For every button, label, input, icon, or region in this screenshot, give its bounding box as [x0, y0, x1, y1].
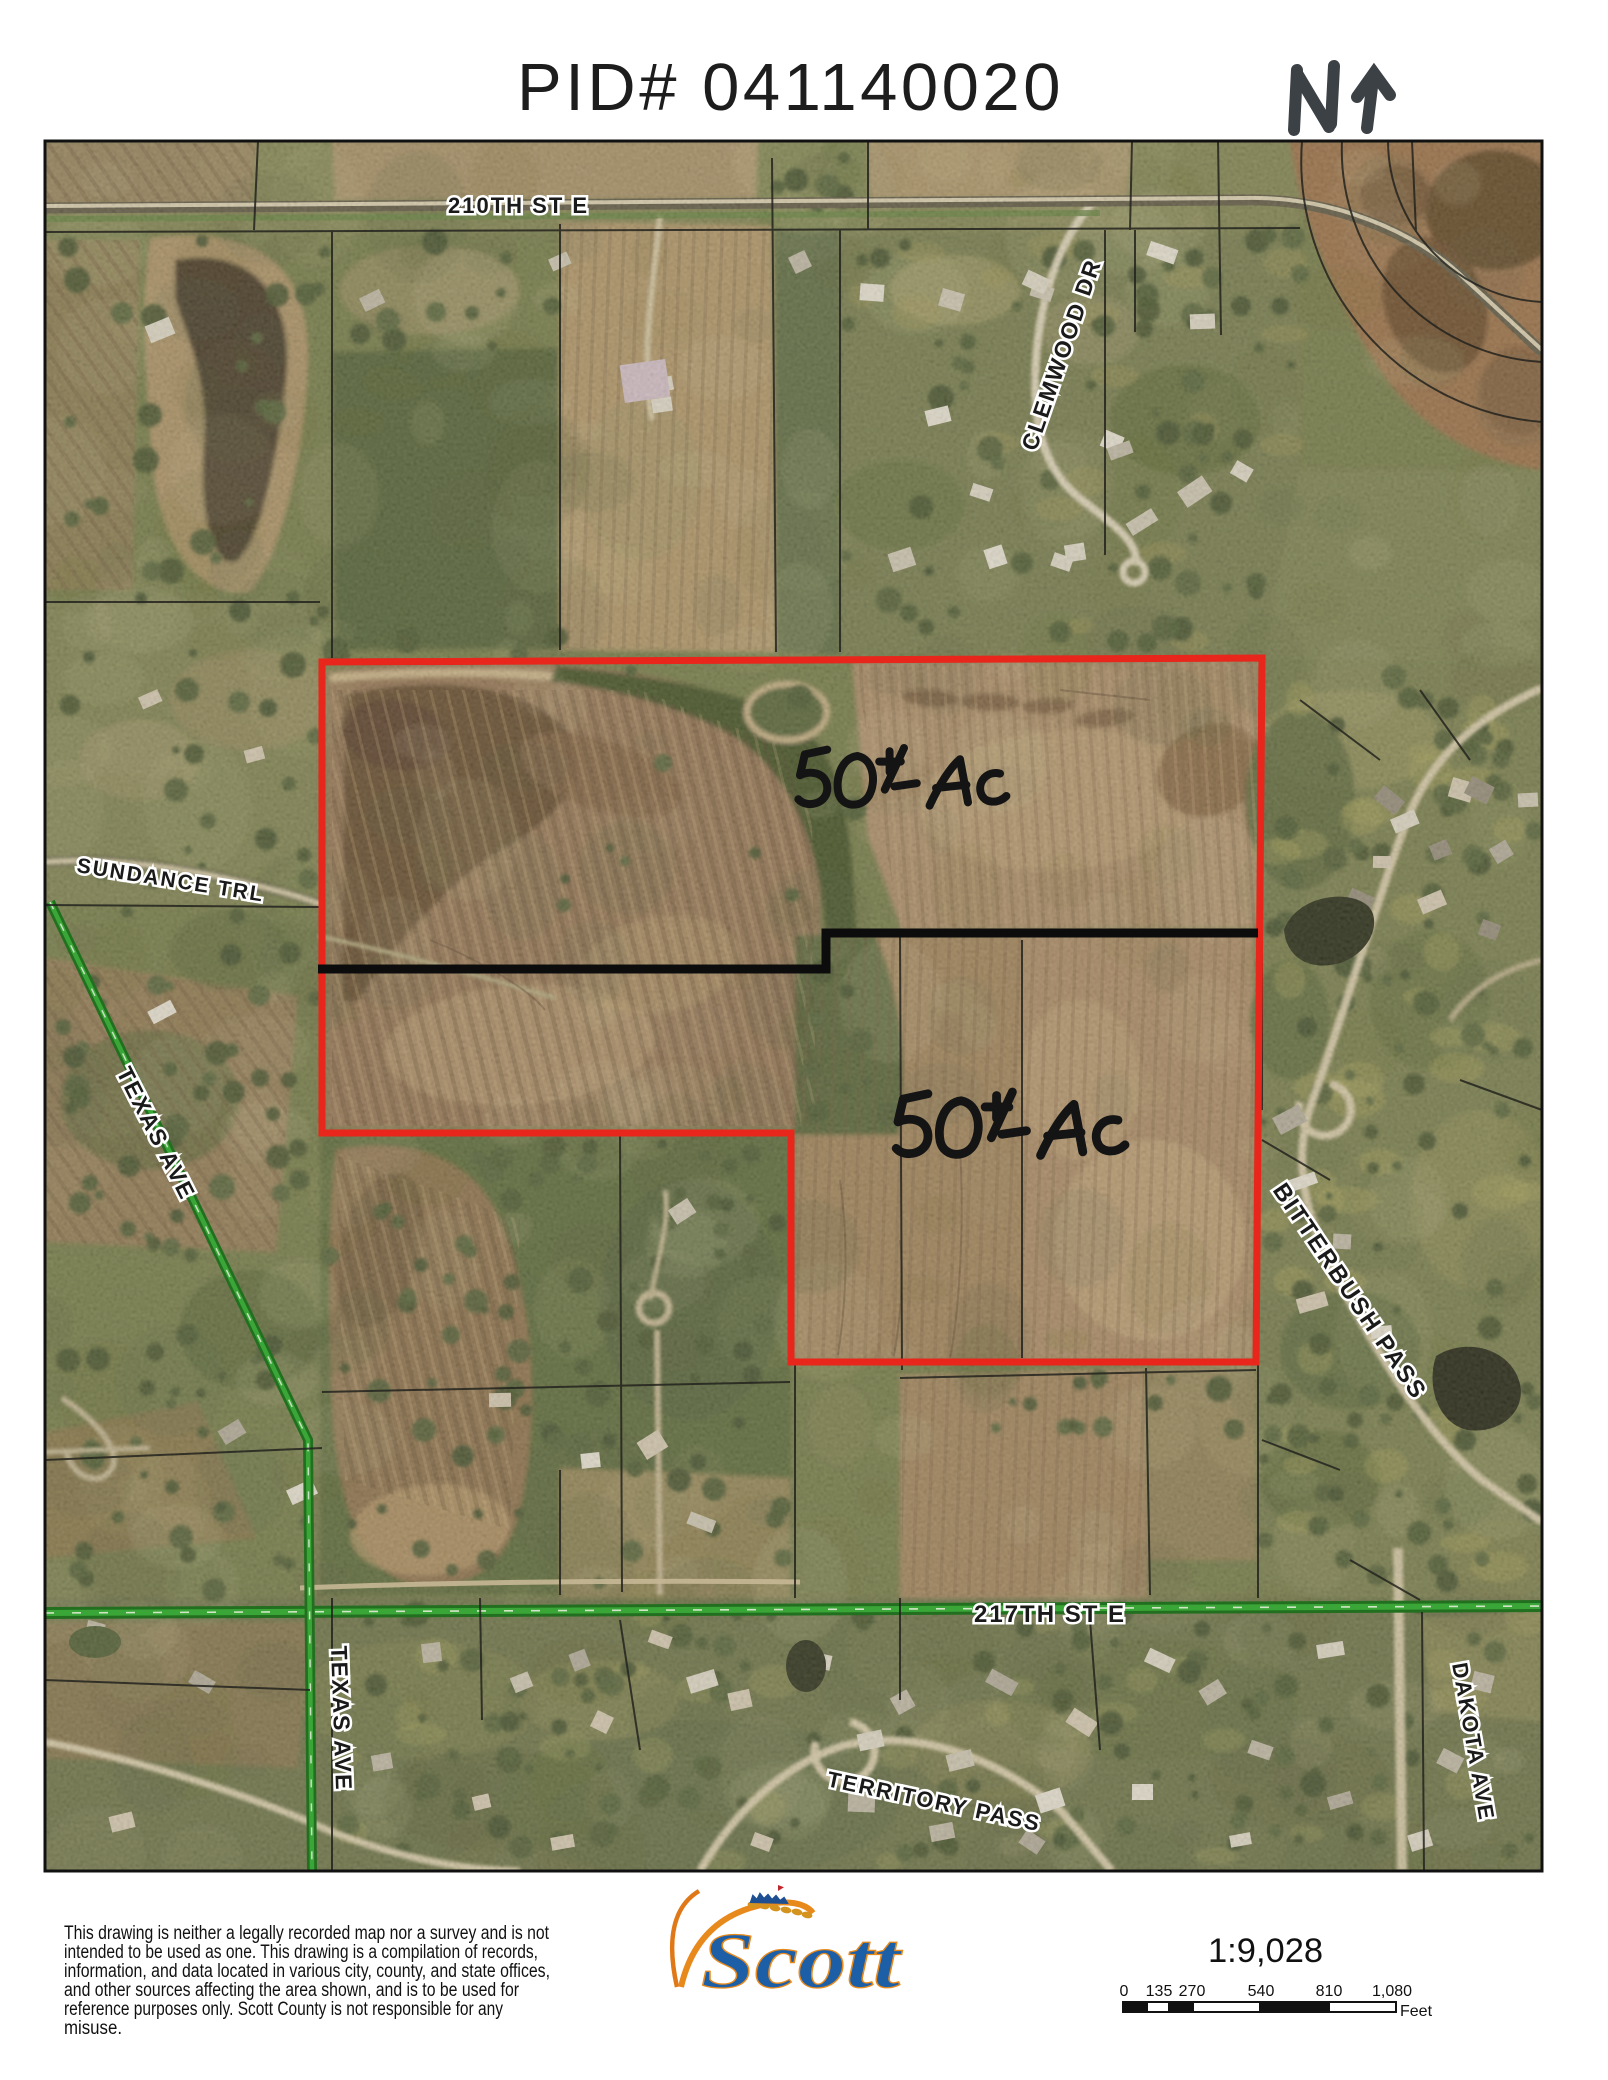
svg-text:intended to be used as one. Th: intended to be used as one. This drawing…: [64, 1942, 538, 1963]
svg-text:1:9,028: 1:9,028: [1208, 1932, 1323, 1970]
svg-text:This drawing is neither a lega: This drawing is neither a legally record…: [64, 1923, 550, 1944]
svg-text:210TH ST E: 210TH ST E: [448, 193, 589, 218]
svg-text:TEXAS AVE: TEXAS AVE: [326, 1645, 357, 1792]
svg-text:0: 0: [1120, 1983, 1129, 2000]
svg-text:1,080: 1,080: [1372, 1983, 1412, 2000]
svg-text:217TH ST E: 217TH ST E: [974, 1601, 1126, 1628]
svg-text:Scott: Scott: [701, 1918, 903, 2005]
svg-text:misuse.: misuse.: [64, 2018, 122, 2039]
svg-text:270: 270: [1179, 1983, 1206, 2000]
svg-text:PID# 041140020: PID# 041140020: [517, 50, 1064, 125]
svg-text:information, and data located: information, and data located in various…: [64, 1961, 550, 1982]
svg-text:540: 540: [1248, 1983, 1275, 2000]
svg-text:810: 810: [1316, 1983, 1343, 2000]
svg-text:and other sources affecting th: and other sources affecting the area sho…: [64, 1980, 520, 2001]
svg-text:Feet: Feet: [1400, 2003, 1433, 2020]
svg-text:reference purposes only. Scott: reference purposes only. Scott County is…: [64, 1999, 503, 2020]
svg-text:135: 135: [1146, 1983, 1173, 2000]
